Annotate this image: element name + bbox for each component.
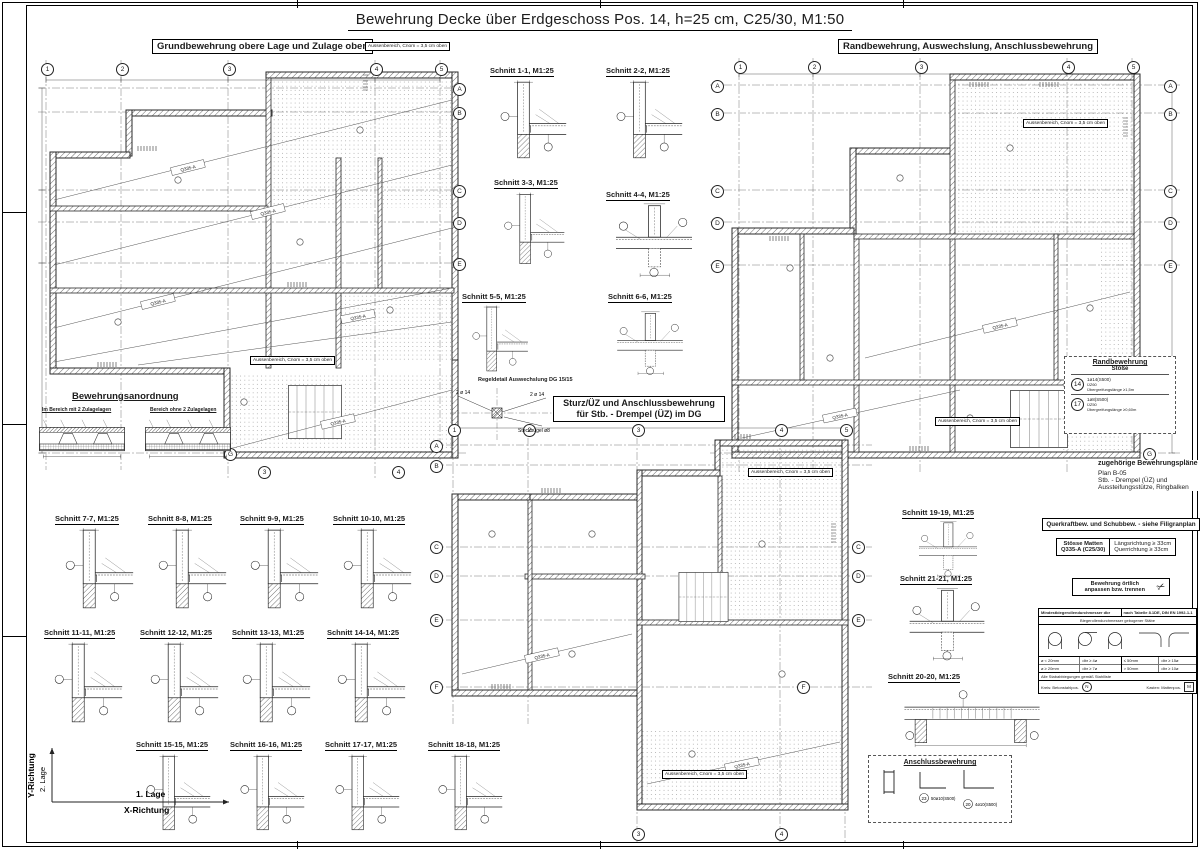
grid-bubble: E xyxy=(453,258,466,271)
section-title: Schnitt 21-21, M1:25 xyxy=(900,574,972,585)
section-title: Schnitt 12-12, M1:25 xyxy=(140,628,212,639)
biege-row: dbr ≥ 10ø xyxy=(1158,665,1196,672)
section-title: Schnitt 2-2, M1:25 xyxy=(606,66,670,77)
section-title: Schnitt 13-13, M1:25 xyxy=(232,628,304,639)
section-drawing xyxy=(238,640,312,726)
section-detail: Schnitt 4-4, M1:25 xyxy=(606,190,696,278)
grid-bubble: 2 xyxy=(808,61,821,74)
fold-mark xyxy=(3,212,26,213)
cover-note: Aussenbereich, Cnom = 3,5 cm oben xyxy=(365,42,450,51)
biege-footnote: Alle Stababbiegungen gemäß Stahlliste xyxy=(1039,672,1196,680)
stoesse-table: Stösse Matten Q335-A (C25/30) Längsricht… xyxy=(1056,538,1176,556)
plan-right-label: Randbewehrung, Auswechslung, Anschlussbe… xyxy=(838,39,1098,54)
fold-mark xyxy=(3,636,26,637)
section-drawing xyxy=(331,752,401,834)
axis-y-label: Y-Richtung xyxy=(26,753,36,798)
section-detail: Schnitt 12-12, M1:25 xyxy=(140,628,220,726)
stoesse-left-l2: Q335-A (C25/30) xyxy=(1061,547,1105,553)
plan-left-label: Grundbewehrung obere Lage und Zulage obe… xyxy=(152,39,373,54)
anordnung-right-caption: Bereich ohne 2 Zulagelagen xyxy=(150,407,216,413)
section-drawing xyxy=(612,78,684,162)
grid-bubble: 5 xyxy=(1127,61,1140,74)
grid-bubble: F xyxy=(430,681,443,694)
section-detail: Schnitt 21-21, M1:25 xyxy=(900,574,988,662)
section-detail: Schnitt 5-5, M1:25 xyxy=(462,292,530,374)
grid-bubble: 2 xyxy=(116,63,129,76)
grid-bubble: 4 xyxy=(1062,61,1075,74)
section-title: Schnitt 5-5, M1:25 xyxy=(462,292,526,303)
grid-bubble: 1 xyxy=(734,61,747,74)
section-detail: Schnitt 8-8, M1:25 xyxy=(148,514,228,612)
stirrup-label: Steckbügel ø8 xyxy=(518,428,550,434)
oertlich-box: Bewehrung örtlich anpassen bzw. trennen … xyxy=(1072,578,1170,596)
biege-row: dbr ≥ 7ø xyxy=(1079,665,1120,672)
randbewehrung-stoesse-box: Randbewehrung Stöße 14 1ø14(S500) ÜZ60 Ü… xyxy=(1064,356,1176,434)
grid-bubble: 4 xyxy=(392,466,405,479)
fold-mark xyxy=(297,0,298,8)
square-pos-symbol: M xyxy=(1184,682,1194,692)
section-drawing xyxy=(500,190,566,268)
grid-bubble: 4 xyxy=(370,63,383,76)
section-drawing xyxy=(333,640,407,726)
biege-row: ≤ 50mm xyxy=(1122,657,1159,664)
grid-bubble: A xyxy=(453,83,466,96)
anordnung-title: Bewehrungsanordnung xyxy=(72,391,179,402)
biege-row: > 50mm xyxy=(1122,665,1159,672)
regeldetail-label: Regeldetail Auswechslung DG 15/15 xyxy=(478,377,573,383)
grid-bubble: 1 xyxy=(41,63,54,76)
section-detail: Schnitt 7-7, M1:25 xyxy=(55,514,135,612)
grid-bubble: 4 xyxy=(775,424,788,437)
grid-bubble: 5 xyxy=(840,424,853,437)
section-title: Schnitt 9-9, M1:25 xyxy=(240,514,304,525)
biege-diagrams xyxy=(1039,625,1194,655)
biege-caption: Biegerollendurchmesser gebogener Stäbe xyxy=(1039,617,1196,625)
section-title: Schnitt 18-18, M1:25 xyxy=(428,740,500,751)
section-drawing xyxy=(154,526,228,612)
axis-indicator: Y-Richtung 2. Lage 1. Lage X-Richtung xyxy=(24,740,239,820)
legend-circle-label: Kreis: Betonstahlpos. xyxy=(1041,685,1079,690)
section-detail: Schnitt 16-16, M1:25 xyxy=(230,740,306,834)
section-drawing xyxy=(61,526,135,612)
biege-row: dbr ≥ 15ø xyxy=(1158,657,1196,664)
grid-bubble: B xyxy=(453,107,466,120)
grid-bubble: F xyxy=(797,681,810,694)
oertlich-line2: anpassen bzw. trennen xyxy=(1077,587,1153,593)
section-detail: Schnitt 19-19, M1:25 xyxy=(902,508,988,578)
fold-mark xyxy=(600,0,601,8)
randbox-title: Randbewehrung xyxy=(1065,359,1175,366)
section-drawing xyxy=(246,526,320,612)
scissors-icon: ✂ xyxy=(1155,580,1167,594)
section-detail: Schnitt 9-9, M1:25 xyxy=(240,514,320,612)
grid-bubble: E xyxy=(852,614,865,627)
section-detail: Schnitt 11-11, M1:25 xyxy=(44,628,124,726)
related-plans-note: zugehörige Bewehrungspläne Plan B-05 Stb… xyxy=(1098,460,1198,491)
anschluss-diagram: 23 50ø10(S500) 20 4ø10(S500) xyxy=(872,766,1008,810)
section-title: Schnitt 14-14, M1:25 xyxy=(327,628,399,639)
anordnung-diagram xyxy=(140,414,235,470)
grid-bubble: 3 xyxy=(632,424,645,437)
section-drawing xyxy=(614,304,686,382)
cover-note: Aussenbereich, Cnom = 3,5 cm oben xyxy=(250,356,335,365)
pos-bubble: 17 xyxy=(1071,398,1084,411)
section-drawing xyxy=(146,640,220,726)
grid-bubble: A xyxy=(711,80,724,93)
anschluss-bar-label: 50ø10(S500) xyxy=(931,796,956,801)
section-title: Schnitt 16-16, M1:25 xyxy=(230,740,302,751)
axis-x-label: 1. Lage xyxy=(136,789,166,799)
biege-row: ø < 20mm xyxy=(1039,657,1079,664)
randbox-sub: Stöße xyxy=(1065,366,1175,372)
grid-bubble: D xyxy=(1164,217,1177,230)
cover-note: Aussenbereich, Cnom = 3,5 cm oben xyxy=(1023,119,1108,128)
grid-bubble: C xyxy=(1164,185,1177,198)
steckbuegel-diagram: 2 ø 14 2 ø 14 Steckbügel ø8 xyxy=(448,386,558,444)
grid-bubble: B xyxy=(1164,108,1177,121)
anschluss-bar-label: 4ø10(S500) xyxy=(975,802,998,807)
grid-bubble: A xyxy=(430,440,443,453)
pos-bubble: 20 xyxy=(965,802,971,807)
section-drawing xyxy=(339,526,413,612)
grid-bubble: C xyxy=(852,541,865,554)
fold-mark xyxy=(903,0,904,8)
anordnung-left-caption: Im Bereich mit 2 Zulagelagen xyxy=(42,407,111,413)
grid-bubble: D xyxy=(453,217,466,230)
section-detail: Schnitt 18-18, M1:25 xyxy=(428,740,504,834)
bar-label: 2 ø 14 xyxy=(456,390,470,396)
section-drawing xyxy=(612,202,696,278)
grid-bubble: E xyxy=(430,614,443,627)
section-detail: Schnitt 2-2, M1:25 xyxy=(606,66,684,162)
grid-bubble: D xyxy=(430,570,443,583)
biege-row: ø ≥ 20mm xyxy=(1039,665,1079,672)
pos-bubble: 23 xyxy=(921,796,927,801)
section-title: Schnitt 8-8, M1:25 xyxy=(148,514,212,525)
related-plan-ref: Plan B-05 xyxy=(1098,470,1198,477)
anschluss-box: Anschlussbewehrung 23 50ø10(S500) 20 4ø1… xyxy=(868,755,1012,823)
section-drawing xyxy=(50,640,124,726)
grid-bubble: D xyxy=(852,570,865,583)
grid-bubble: A xyxy=(1164,80,1177,93)
biege-title: Mindestbiegerollendurchmesser dbr xyxy=(1039,609,1122,616)
section-detail: Schnitt 1-1, M1:25 xyxy=(490,66,568,162)
circle-pos-symbol: N xyxy=(1082,682,1092,692)
querkraft-note: Querkraftbew. und Schubbew. - siehe Fili… xyxy=(1042,518,1200,531)
randbox-item-lap: Übergreifungslänge ≥0,60m xyxy=(1087,407,1136,412)
legend-box-label: Kasten: Mattenpos. xyxy=(1147,685,1181,690)
related-plan-ref: Aussteifungsstütze, Ringbalken xyxy=(1098,484,1198,491)
section-detail: Schnitt 13-13, M1:25 xyxy=(232,628,312,726)
section-drawing xyxy=(906,586,988,662)
section-title: Schnitt 17-17, M1:25 xyxy=(325,740,397,751)
section-title: Schnitt 4-4, M1:25 xyxy=(606,190,670,201)
section-detail: Schnitt 14-14, M1:25 xyxy=(327,628,407,726)
axis-x2-label: X-Richtung xyxy=(124,805,169,815)
fold-mark xyxy=(903,841,904,849)
section-drawing xyxy=(236,752,306,834)
section-drawing xyxy=(496,78,568,162)
grid-bubble: C xyxy=(430,541,443,554)
anordnung-diagram xyxy=(34,414,129,470)
section-drawing xyxy=(434,752,504,834)
section-detail: Schnitt 17-17, M1:25 xyxy=(325,740,401,834)
section-drawing xyxy=(908,520,988,578)
grid-bubble: D xyxy=(711,217,724,230)
drawing-title: Bewehrung Decke über Erdgeschoss Pos. 14… xyxy=(300,11,900,28)
plan-center-label-line1: Sturz/ÜZ und Anschlussbewehrung xyxy=(558,398,720,409)
biege-ref: nach Tabelle 8.1DE, DIN EN 1992-1-1 xyxy=(1122,609,1196,616)
cover-note: Aussenbereich, Cnom = 3,5 cm oben xyxy=(935,417,1020,426)
related-plan-ref: Stb. - Drempel (ÜZ) und xyxy=(1098,477,1198,484)
biegerollen-table: Mindestbiegerollendurchmesser dbr nach T… xyxy=(1038,608,1197,694)
grid-bubble: E xyxy=(1164,260,1177,273)
section-title: Schnitt 3-3, M1:25 xyxy=(494,178,558,189)
grid-bubble: B xyxy=(711,108,724,121)
grid-bubble: C xyxy=(453,185,466,198)
section-title: Schnitt 1-1, M1:25 xyxy=(490,66,554,77)
cover-note: Aussenbereich, Cnom = 3,5 cm oben xyxy=(662,770,747,779)
section-detail: Schnitt 6-6, M1:25 xyxy=(608,292,686,382)
fold-mark xyxy=(3,424,26,425)
grid-bubble: C xyxy=(711,185,724,198)
section-title: Schnitt 11-11, M1:25 xyxy=(44,628,115,639)
section-title: Schnitt 20-20, M1:25 xyxy=(888,672,960,683)
randbox-item-lap: Übergreifungslänge ≥1,5m xyxy=(1087,387,1134,392)
grid-bubble: 3 xyxy=(632,828,645,841)
plan-center-label: Sturz/ÜZ und Anschlussbewehrung für Stb.… xyxy=(553,396,725,422)
grid-bubble: B xyxy=(430,460,443,473)
section-detail: Schnitt 10-10, M1:25 xyxy=(333,514,413,612)
section-title: Schnitt 6-6, M1:25 xyxy=(608,292,672,303)
grid-bubble: 3 xyxy=(223,63,236,76)
fold-mark xyxy=(297,841,298,849)
section-detail: Schnitt 3-3, M1:25 xyxy=(494,178,566,268)
section-detail: Schnitt 20-20, M1:25 xyxy=(888,672,1050,748)
axis-y2-label: 2. Lage xyxy=(38,767,47,792)
cover-note: Aussenbereich, Cnom = 3,5 cm oben xyxy=(748,468,833,477)
related-plans-title: zugehörige Bewehrungspläne xyxy=(1098,460,1198,467)
anschluss-title: Anschlussbewehrung xyxy=(869,759,1011,766)
section-drawing xyxy=(468,304,530,374)
grid-bubble: 5 xyxy=(435,63,448,76)
grid-bubble: 3 xyxy=(258,466,271,479)
plan-center-label-line2: für Stb. - Drempel (ÜZ) im DG xyxy=(558,409,720,420)
bar-label: 2 ø 14 xyxy=(530,392,544,398)
grid-bubble: 4 xyxy=(775,828,788,841)
section-drawing xyxy=(894,684,1050,748)
section-title: Schnitt 7-7, M1:25 xyxy=(55,514,119,525)
biege-row: dbr ≥ 4ø xyxy=(1079,657,1120,664)
pos-bubble: 14 xyxy=(1071,378,1084,391)
grid-bubble: E xyxy=(711,260,724,273)
grid-bubble: 3 xyxy=(915,61,928,74)
stoesse-right-l2: Querrichtung ≥ 33cm xyxy=(1114,547,1171,553)
section-title: Schnitt 19-19, M1:25 xyxy=(902,508,974,519)
section-title: Schnitt 10-10, M1:25 xyxy=(333,514,405,525)
